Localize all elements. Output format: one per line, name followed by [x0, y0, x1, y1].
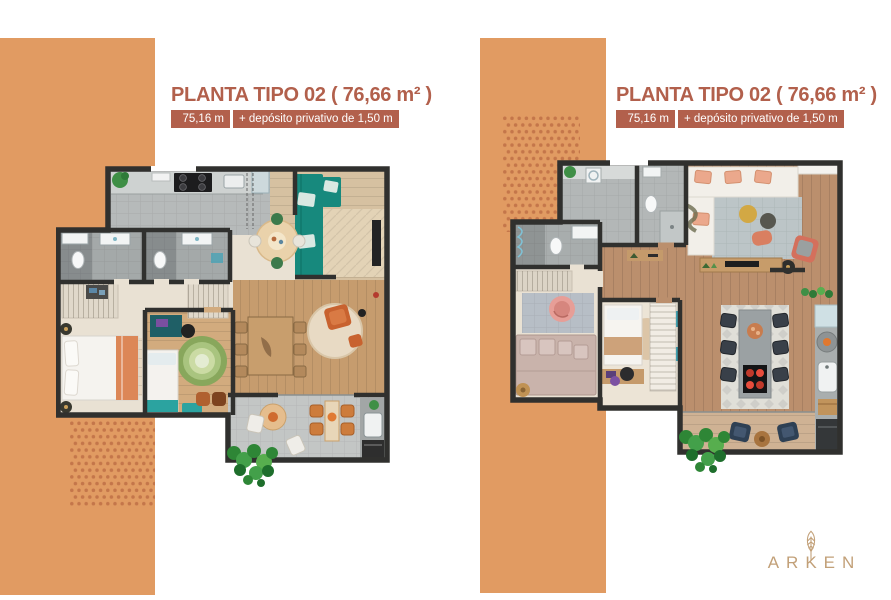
brand-logo: ARKEN — [756, 528, 866, 573]
plan-card-left: PLANTA TIPO 02 ( 76,66 m² ) 75,16 m + de… — [171, 84, 432, 128]
badges-right: 75,16 m + depósito privativo de 1,50 m — [616, 110, 877, 128]
area-badge-right: 75,16 m — [616, 110, 675, 128]
brand-name: ARKEN — [756, 553, 866, 573]
plan-title-left: PLANTA TIPO 02 ( 76,66 m² ) — [171, 84, 432, 106]
deposit-badge-left: + depósito privativo de 1,50 m — [233, 110, 399, 128]
deposit-badge-right: + depósito privativo de 1,50 m — [678, 110, 844, 128]
area-badge-left: 75,16 m — [171, 110, 230, 128]
floor-plan-left — [56, 165, 390, 491]
badges-left: 75,16 m + depósito privativo de 1,50 m — [171, 110, 432, 128]
floor-plan-right — [510, 159, 844, 473]
plan-card-right: PLANTA TIPO 02 ( 76,66 m² ) 75,16 m + de… — [616, 84, 877, 128]
plan-title-right: PLANTA TIPO 02 ( 76,66 m² ) — [616, 84, 877, 106]
